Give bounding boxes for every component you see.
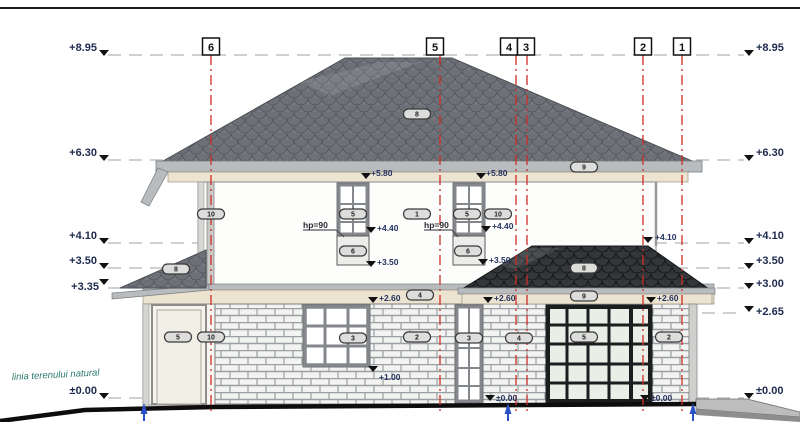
garage-corner-trim (689, 304, 697, 404)
grid-bubble-label: 6 (208, 42, 214, 54)
main-gutter (156, 161, 702, 172)
narrow-glazed-door (455, 305, 483, 403)
tag-label-window-a: 5 (351, 212, 355, 219)
tag-label-slab-band: 4 (418, 293, 422, 300)
tag-label-downpipe-b: 10 (494, 212, 502, 219)
level-mark-icon (744, 238, 754, 244)
gutter-end-left (141, 168, 168, 206)
tag-label-entry-door: 5 (176, 335, 180, 342)
elevation-drawing: 6 5 4 3 2 1 +8.95 +6.30 +4.10 +3.50 +3.3… (0, 0, 800, 422)
grid-bubble-label: 2 (640, 42, 646, 54)
tag-label-window-b: 5 (465, 212, 469, 219)
inline-level: +5.80 (371, 168, 393, 178)
elevation-markers-left: +8.95 +6.30 +4.10 +3.50 +3.35 ±0.00 lini… (12, 42, 109, 399)
level-label: +8.95 (69, 42, 97, 54)
level-mark-icon (744, 306, 754, 312)
main-fascia (168, 172, 688, 182)
tag-label-garage-door: 5 (582, 335, 586, 342)
inline-level: +5.80 (486, 168, 508, 178)
grid-bubbles: 6 5 4 3 2 1 (203, 38, 691, 55)
parapet-height-label: hp=90 (303, 220, 328, 230)
grid-bubble-label: 1 (679, 42, 685, 54)
level-mark-icon (744, 263, 754, 269)
inline-level: +2.60 (657, 293, 679, 303)
level-mark-icon (99, 50, 109, 56)
level-label: +4.10 (756, 230, 784, 242)
inline-level: +4.40 (377, 223, 399, 233)
level-label: ±0.00 (756, 385, 783, 397)
inline-level: +3.50 (489, 255, 511, 265)
entry-door (152, 305, 206, 404)
tag-label-ground-window: 3 (351, 336, 355, 343)
level-label: +2.65 (756, 306, 784, 318)
inline-level: ±0.00 (496, 393, 517, 403)
level-mark-icon (744, 50, 754, 56)
ground-line (0, 404, 696, 421)
level-mark-icon (744, 155, 754, 161)
inline-level: ±0.00 (651, 393, 672, 403)
tag-label-canopy-roof: 8 (174, 267, 178, 274)
level-mark-icon (99, 155, 109, 161)
level-label: +3.35 (71, 281, 99, 293)
parapet-height-label: hp=90 (424, 220, 449, 230)
level-label: ±0.00 (70, 385, 97, 397)
tag-label-brick-left: 2 (415, 335, 419, 342)
inline-level: +4.10 (655, 232, 677, 242)
tag-label-downpipe-upper: 10 (207, 212, 215, 219)
tag-label-garage-roof: 8 (582, 266, 586, 273)
level-mark-icon (744, 283, 754, 289)
ground-arrow-stem (143, 414, 145, 421)
tag-label-brick-right: 2 (667, 335, 671, 342)
level-mark-icon (99, 393, 109, 399)
level-mark-icon (99, 238, 109, 244)
tag-label-upper-wall: 1 (415, 212, 419, 219)
inline-level: +1.00 (379, 372, 401, 382)
level-mark-icon (99, 263, 109, 269)
inline-level: +3.50 (377, 257, 399, 267)
inline-level: +2.60 (494, 293, 516, 303)
garage-door (546, 305, 652, 403)
level-label: +3.50 (756, 255, 784, 267)
tag-label-downpipe-lower: 10 (207, 335, 215, 342)
ground-arrow-stem (507, 414, 509, 421)
grid-bubble-label: 3 (523, 42, 529, 54)
level-mark-icon (99, 279, 109, 285)
level-label: +3.00 (756, 278, 784, 290)
tag-label-garage-fascia: 9 (582, 294, 586, 301)
tag-label-brick-mid: 4 (517, 336, 521, 343)
grid-bubble-label: 4 (506, 42, 513, 54)
entry-wall-trim (143, 304, 149, 405)
elevation-drawing-sheet: 6 5 4 3 2 1 +8.95 +6.30 +4.10 +3.50 +3.3… (0, 0, 800, 422)
inline-level: +2.60 (379, 293, 401, 303)
tag-label-narrow-door: 3 (467, 336, 471, 343)
level-label: +4.10 (69, 230, 97, 242)
level-label: +8.95 (756, 42, 784, 54)
level-label: +6.30 (756, 147, 784, 159)
tag-label-parapet-a: 6 (351, 249, 355, 256)
elevation-markers-right: +8.95 +6.30 +4.10 +3.50 +3.00 +2.65 ±0.0… (744, 42, 784, 399)
level-mark-icon (744, 393, 754, 399)
level-label: +6.30 (69, 147, 97, 159)
inline-level: +4.40 (492, 221, 514, 231)
tag-label-main-fascia: 9 (582, 165, 586, 172)
tag-label-parapet-b: 6 (466, 249, 470, 256)
grid-bubble-label: 5 (432, 42, 438, 54)
ground-arrow-stem (692, 414, 694, 421)
level-label: +3.50 (69, 255, 97, 267)
tag-label-main-roof: 8 (415, 112, 419, 119)
ground-line-label: linia terenului natural (12, 367, 101, 383)
